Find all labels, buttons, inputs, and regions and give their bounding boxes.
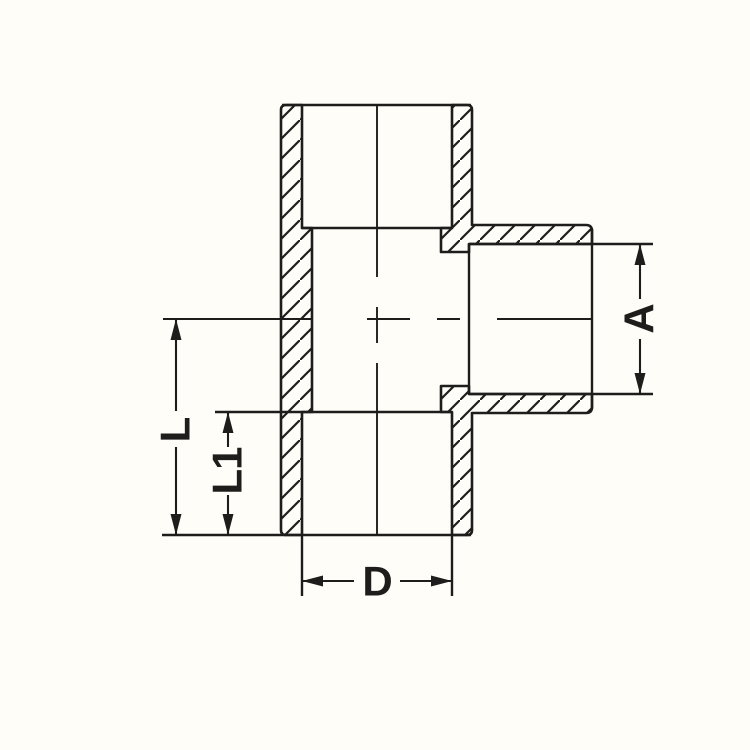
dimension-L: L — [152, 319, 199, 535]
dim-l-arrow-up-icon — [171, 319, 182, 340]
dim-l1-arrow-down-icon — [223, 514, 234, 535]
dim-a-label: A — [616, 304, 663, 334]
edge-lines — [162, 105, 653, 596]
dimension-A: A — [616, 244, 663, 394]
dim-l1-arrow-up-icon — [223, 412, 234, 433]
dim-d-label: D — [362, 558, 391, 605]
dimension-L1: L1 — [204, 412, 251, 535]
dim-d-arrow-right-icon — [431, 576, 452, 587]
dim-l1-label: L1 — [204, 447, 251, 495]
fitting-cross-section — [281, 105, 592, 535]
dimension-D: D — [302, 558, 452, 605]
body-right-upper-and-branch-top-wall-section — [441, 105, 592, 252]
dim-l-arrow-down-icon — [171, 514, 182, 535]
body-right-lower-and-branch-bottom-wall-section — [441, 386, 592, 535]
tee-fitting-section-drawing: L L1 A D — [0, 0, 750, 750]
dim-d-arrow-left-icon — [302, 576, 323, 587]
body-left-wall-section — [281, 105, 312, 535]
drawing-canvas: L L1 A D — [0, 0, 750, 750]
dim-l-label: L — [152, 417, 199, 442]
dim-a-arrow-up-icon — [635, 244, 646, 265]
dim-a-arrow-down-icon — [635, 373, 646, 394]
